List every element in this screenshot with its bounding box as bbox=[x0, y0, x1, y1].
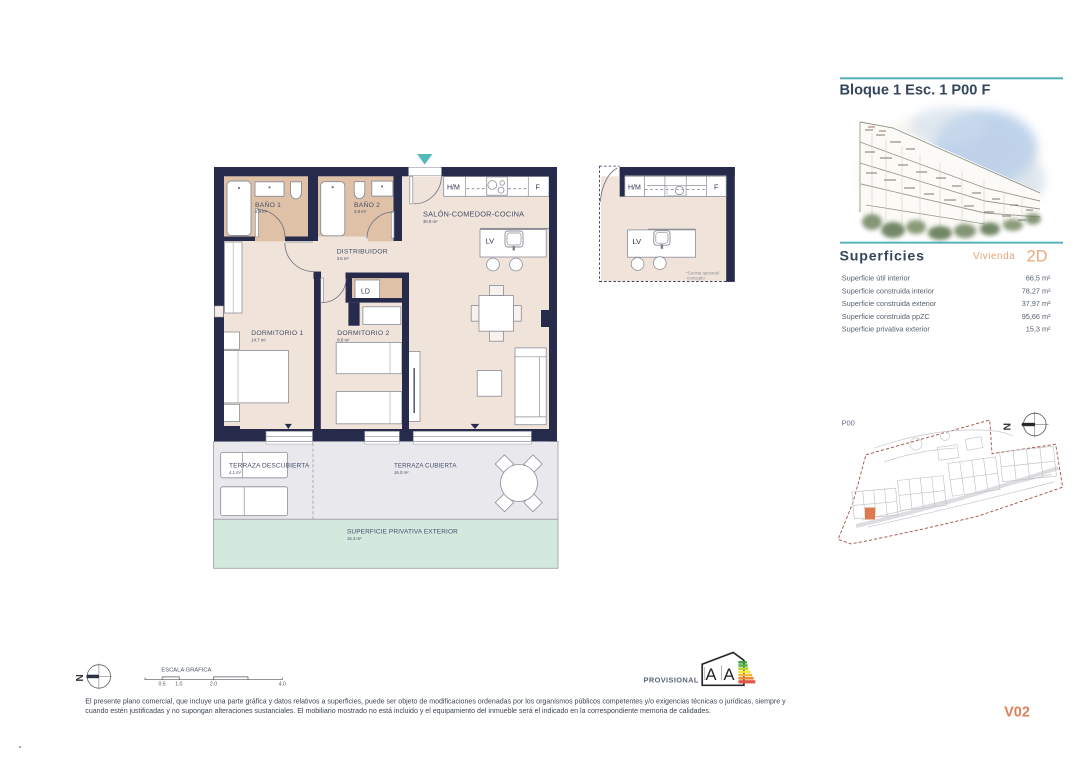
svg-text:H/M: H/M bbox=[447, 184, 460, 191]
svg-text:8.8 m²: 8.8 m² bbox=[337, 337, 350, 342]
svg-text:LV: LV bbox=[486, 237, 495, 246]
svg-text:BAÑO 1: BAÑO 1 bbox=[255, 200, 281, 209]
svg-text:3.6 m²: 3.6 m² bbox=[337, 256, 350, 261]
svg-text:LV: LV bbox=[633, 237, 642, 246]
svg-text:BAÑO 2: BAÑO 2 bbox=[354, 200, 380, 209]
svg-text:Superficie útil interior: Superficie útil interior bbox=[842, 274, 911, 283]
svg-text:SALÓN-COMEDOR-COCINA: SALÓN-COMEDOR-COCINA bbox=[423, 210, 524, 219]
svg-text:N: N bbox=[1002, 423, 1014, 431]
svg-text:Superficie construida ppZC: Superficie construida ppZC bbox=[842, 312, 930, 321]
svg-text:66,5 m²: 66,5 m² bbox=[1026, 274, 1051, 283]
svg-text:DORMITORIO 2: DORMITORIO 2 bbox=[337, 330, 389, 337]
svg-text:F: F bbox=[714, 185, 718, 192]
svg-text:95,66 m²: 95,66 m² bbox=[1022, 312, 1051, 321]
svg-text:DORMITORIO 1: DORMITORIO 1 bbox=[251, 330, 303, 337]
svg-text:A: A bbox=[706, 666, 717, 684]
svg-text:V02: V02 bbox=[1004, 705, 1030, 721]
svg-text:14.7 m²: 14.7 m² bbox=[251, 337, 266, 342]
svg-text:concepto: concepto bbox=[687, 275, 705, 280]
svg-text:2D: 2D bbox=[1027, 248, 1048, 266]
svg-text:3.8 m²: 3.8 m² bbox=[354, 209, 367, 214]
svg-text:30.9 m²: 30.9 m² bbox=[423, 219, 438, 224]
svg-text:ESCALA GRÁFICA: ESCALA GRÁFICA bbox=[161, 667, 211, 674]
svg-text:78,27 m²: 78,27 m² bbox=[1022, 286, 1051, 295]
svg-text:1.0: 1.0 bbox=[175, 682, 182, 688]
svg-text:TERRAZA DESCUBIERTA: TERRAZA DESCUBIERTA bbox=[229, 463, 310, 470]
svg-text:2.9 m²: 2.9 m² bbox=[255, 209, 268, 214]
svg-text:37,97 m²: 37,97 m² bbox=[1022, 299, 1051, 308]
svg-text:A: A bbox=[724, 666, 735, 684]
svg-text:4.0: 4.0 bbox=[279, 682, 286, 688]
svg-text:N: N bbox=[75, 674, 86, 681]
svg-text:LD: LD bbox=[361, 289, 370, 296]
svg-text:SUPERFICIE PRIVATIVA EXTERIOR: SUPERFICIE PRIVATIVA EXTERIOR bbox=[347, 529, 458, 536]
svg-text:16.0 m²: 16.0 m² bbox=[394, 470, 409, 475]
svg-text:F: F bbox=[536, 184, 540, 191]
svg-text:Superficies: Superficies bbox=[840, 249, 925, 265]
svg-text:Superficie construida interior: Superficie construida interior bbox=[842, 286, 935, 295]
svg-text:4.1 m²: 4.1 m² bbox=[229, 470, 242, 475]
svg-text:PROVISIONAL: PROVISIONAL bbox=[644, 676, 699, 685]
svg-text:0.5: 0.5 bbox=[158, 682, 165, 688]
svg-text:DISTRIBUIDOR: DISTRIBUIDOR bbox=[337, 249, 388, 256]
svg-text:Superficie construida exterior: Superficie construida exterior bbox=[842, 299, 937, 308]
svg-text:H/M: H/M bbox=[628, 185, 641, 192]
svg-text:Bloque 1 Esc. 1 P00 F: Bloque 1 Esc. 1 P00 F bbox=[840, 83, 991, 99]
svg-text:P00: P00 bbox=[842, 419, 855, 428]
svg-text:TERRAZA CUBIERTA: TERRAZA CUBIERTA bbox=[394, 463, 457, 470]
svg-text:2.0: 2.0 bbox=[210, 682, 217, 688]
svg-text:Superficie privativa exterior: Superficie privativa exterior bbox=[842, 325, 931, 334]
svg-text:15,3 m²: 15,3 m² bbox=[1026, 325, 1051, 334]
svg-text:cuando estén justificadas y no: cuando estén justificadas y no supongan … bbox=[85, 708, 711, 715]
svg-text:15.3 m²: 15.3 m² bbox=[347, 536, 362, 541]
svg-text:El presente plano comercial, q: El presente plano comercial, que incluye… bbox=[85, 699, 786, 706]
svg-text:Vivienda: Vivienda bbox=[973, 251, 1015, 262]
